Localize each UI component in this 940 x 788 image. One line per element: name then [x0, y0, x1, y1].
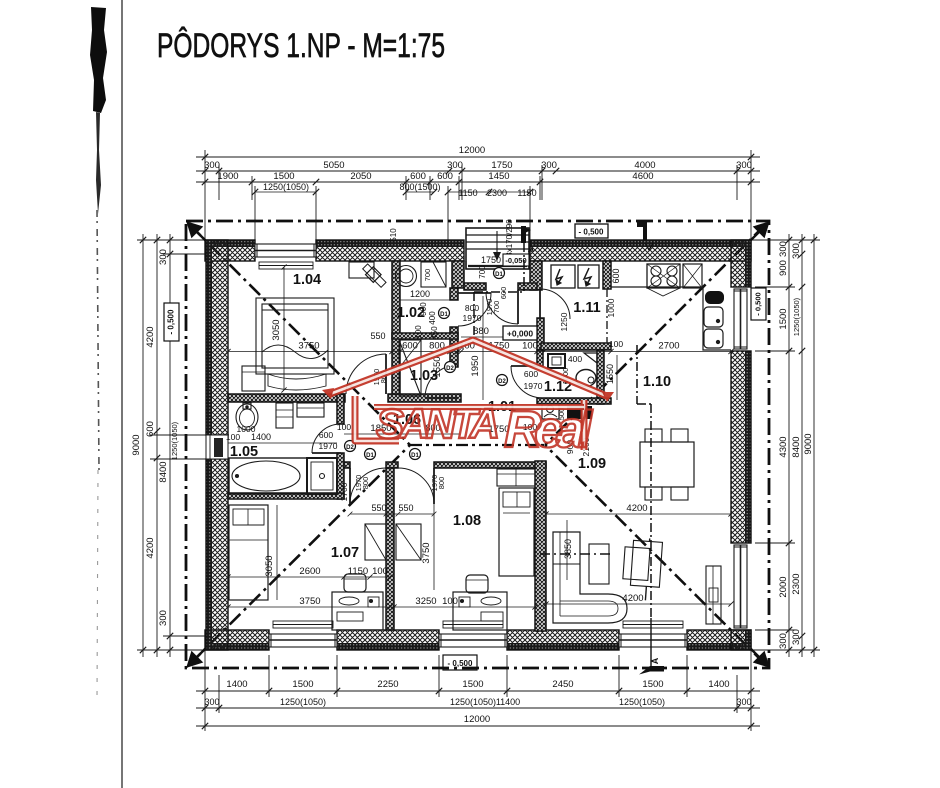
svg-text:1970: 1970: [463, 313, 482, 323]
svg-text:1550: 1550: [432, 356, 443, 377]
svg-text:2450: 2450: [552, 679, 573, 690]
svg-text:4200: 4200: [145, 537, 156, 558]
svg-text:D1: D1: [495, 272, 503, 278]
svg-text:1950: 1950: [470, 355, 481, 376]
svg-text:A: A: [650, 657, 660, 664]
svg-text:100: 100: [372, 566, 388, 577]
svg-text:1.11: 1.11: [573, 300, 600, 316]
svg-text:1700: 1700: [339, 482, 349, 501]
svg-text:100: 100: [522, 341, 538, 352]
svg-text:800: 800: [361, 477, 370, 490]
svg-text:1150: 1150: [458, 188, 477, 198]
svg-text:4200: 4200: [622, 593, 643, 604]
svg-text:12000: 12000: [464, 714, 490, 725]
svg-text:Real: Real: [504, 401, 594, 459]
svg-text:1150: 1150: [517, 188, 536, 198]
svg-text:2600: 2600: [299, 566, 320, 577]
svg-text:1000: 1000: [237, 424, 256, 434]
svg-text:PÔDORYS 1.NP - M=1:75: PÔDORYS 1.NP - M=1:75: [157, 27, 445, 65]
svg-text:1000: 1000: [606, 298, 616, 317]
svg-text:9000: 9000: [131, 434, 142, 455]
svg-text:300: 300: [204, 697, 219, 707]
svg-text:510: 510: [389, 228, 398, 242]
svg-text:1500: 1500: [292, 679, 313, 690]
svg-text:600: 600: [402, 341, 418, 352]
svg-text:300: 300: [158, 249, 169, 265]
svg-text:1.04: 1.04: [293, 272, 321, 288]
svg-text:3050: 3050: [264, 555, 275, 576]
svg-text:1750: 1750: [491, 160, 512, 171]
svg-text:9000: 9000: [803, 433, 814, 454]
svg-text:100: 100: [609, 339, 623, 349]
svg-text:2050: 2050: [350, 171, 371, 182]
svg-text:- 0,500: - 0,500: [754, 292, 763, 315]
svg-text:12000: 12000: [459, 145, 485, 156]
svg-text:300: 300: [791, 243, 802, 259]
svg-text:1550: 1550: [605, 364, 615, 384]
svg-text:1400: 1400: [226, 679, 247, 690]
svg-text:1250(1050): 1250(1050): [792, 297, 801, 336]
svg-text:300: 300: [541, 160, 557, 171]
svg-text:700: 700: [423, 269, 432, 282]
svg-text:1500: 1500: [273, 171, 294, 182]
svg-text:D1: D1: [411, 453, 419, 459]
svg-text:8400: 8400: [158, 461, 169, 482]
svg-text:3750: 3750: [421, 542, 432, 563]
svg-text:1970: 1970: [319, 441, 338, 451]
svg-text:600: 600: [437, 171, 453, 182]
svg-text:- 0,500: - 0,500: [167, 309, 176, 334]
svg-text:3x170/290: 3x170/290: [505, 219, 514, 257]
svg-text:2700: 2700: [658, 341, 679, 352]
svg-text:- 0,500: - 0,500: [579, 228, 604, 237]
svg-text:700: 700: [478, 265, 487, 279]
svg-text:1500: 1500: [778, 308, 789, 329]
svg-text:3250: 3250: [415, 596, 436, 607]
svg-text:1250(1050): 1250(1050): [263, 182, 309, 192]
svg-text:450: 450: [430, 326, 439, 340]
svg-text:SANTA: SANTA: [376, 400, 500, 447]
svg-text:3750: 3750: [298, 341, 319, 352]
svg-text:1.08: 1.08: [453, 513, 481, 529]
svg-text:D2: D2: [498, 379, 506, 385]
svg-text:1400: 1400: [708, 679, 729, 690]
svg-text:300: 300: [447, 160, 463, 171]
svg-text:600: 600: [499, 287, 508, 300]
svg-text:1.07: 1.07: [331, 545, 359, 561]
svg-text:550: 550: [398, 503, 413, 513]
svg-text:1150: 1150: [348, 566, 368, 577]
svg-text:1200: 1200: [410, 289, 430, 299]
svg-text:2300: 2300: [791, 573, 802, 594]
svg-text:400: 400: [568, 354, 582, 364]
svg-text:D1: D1: [440, 312, 448, 318]
svg-text:400: 400: [428, 311, 437, 325]
svg-text:A: A: [528, 244, 535, 254]
svg-text:300: 300: [791, 629, 802, 645]
svg-text:4200: 4200: [145, 326, 156, 347]
svg-text:1250(1050): 1250(1050): [170, 421, 179, 460]
svg-text:1.10: 1.10: [643, 374, 671, 390]
svg-text:D2: D2: [446, 366, 454, 372]
svg-text:D2: D2: [346, 445, 354, 451]
svg-text:300: 300: [736, 160, 752, 171]
svg-text:550: 550: [370, 331, 385, 341]
svg-text:1970: 1970: [524, 381, 543, 391]
svg-text:4000: 4000: [634, 160, 655, 171]
svg-text:1500: 1500: [642, 679, 663, 690]
svg-text:300: 300: [778, 633, 789, 649]
svg-text:900: 900: [419, 302, 428, 316]
svg-text:3050: 3050: [271, 319, 282, 340]
svg-text:+0,000: +0,000: [507, 329, 534, 339]
svg-text:100: 100: [442, 596, 458, 607]
svg-text:1250: 1250: [559, 312, 569, 331]
svg-text:300: 300: [204, 160, 220, 171]
svg-text:3850: 3850: [563, 539, 573, 559]
svg-text:5050: 5050: [323, 160, 344, 171]
svg-text:100: 100: [337, 422, 351, 432]
svg-text:300: 300: [778, 241, 789, 257]
svg-text:100: 100: [414, 325, 423, 339]
svg-text:300: 300: [158, 610, 169, 626]
svg-text:4200: 4200: [626, 503, 647, 514]
svg-text:600: 600: [524, 369, 538, 379]
svg-text:800: 800: [437, 477, 446, 490]
svg-text:800: 800: [465, 303, 479, 313]
svg-text:600: 600: [611, 268, 621, 283]
svg-text:1900: 1900: [217, 171, 238, 182]
svg-text:1250(1050): 1250(1050): [619, 697, 665, 707]
svg-text:550: 550: [371, 503, 386, 513]
svg-text:600: 600: [319, 430, 333, 440]
svg-text:900: 900: [778, 260, 789, 276]
svg-text:300: 300: [736, 697, 751, 707]
svg-text:600: 600: [410, 171, 426, 182]
svg-text:D1: D1: [366, 453, 374, 459]
svg-text:4300: 4300: [778, 436, 789, 457]
svg-text:8400: 8400: [791, 436, 802, 457]
svg-text:700: 700: [492, 301, 501, 314]
svg-text:1750: 1750: [481, 255, 501, 265]
svg-text:1500: 1500: [462, 679, 483, 690]
svg-text:1450: 1450: [488, 171, 509, 182]
svg-text:11400: 11400: [496, 697, 520, 707]
svg-text:1250(1050): 1250(1050): [280, 697, 326, 707]
svg-text:3750: 3750: [299, 596, 320, 607]
svg-text:1250(1050): 1250(1050): [450, 697, 496, 707]
svg-text:2300: 2300: [487, 188, 507, 198]
svg-text:880: 880: [473, 326, 489, 337]
svg-text:2250: 2250: [377, 679, 398, 690]
svg-text:2000: 2000: [778, 576, 789, 597]
svg-text:4600: 4600: [632, 171, 653, 182]
